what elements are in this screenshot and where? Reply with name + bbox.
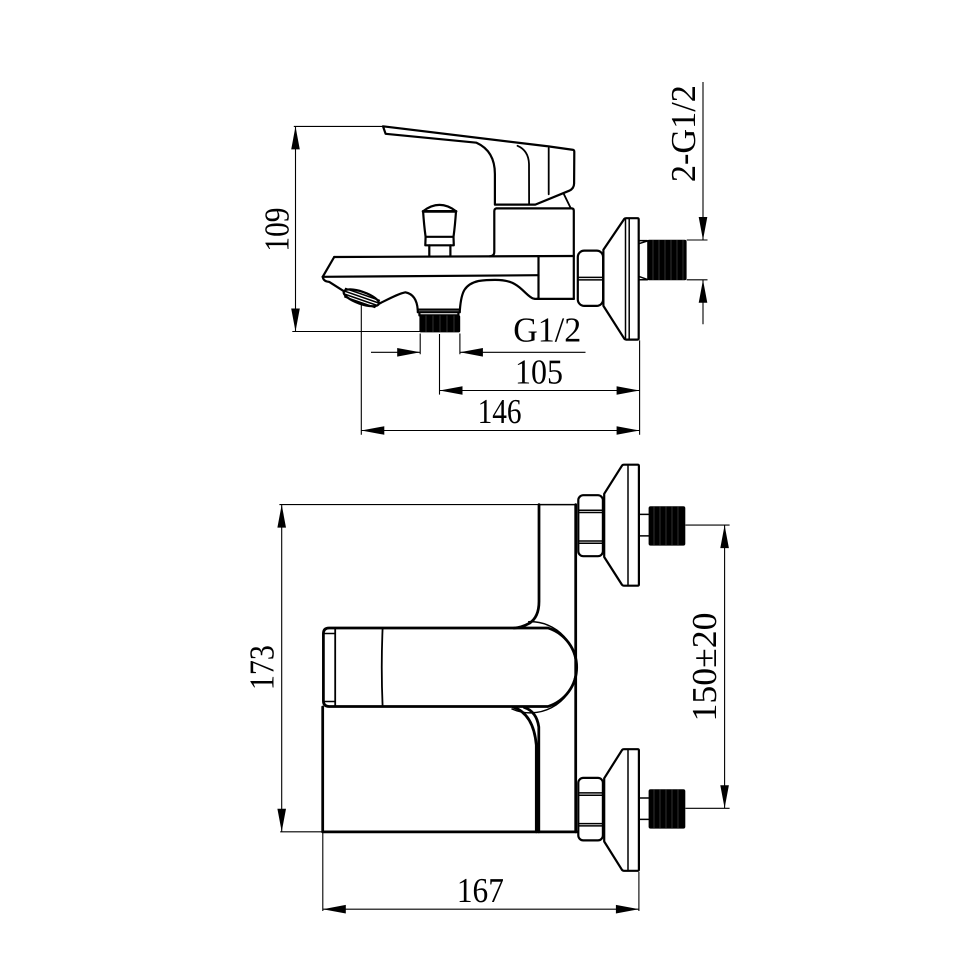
svg-text:150±20: 150±20 (685, 613, 724, 722)
svg-text:2-G1/2: 2-G1/2 (664, 85, 703, 182)
svg-text:G1/2: G1/2 (513, 311, 581, 350)
svg-text:167: 167 (457, 871, 504, 910)
svg-text:105: 105 (515, 352, 563, 391)
svg-text:146: 146 (478, 392, 522, 431)
svg-text:109: 109 (258, 208, 297, 252)
svg-text:173: 173 (242, 645, 281, 690)
